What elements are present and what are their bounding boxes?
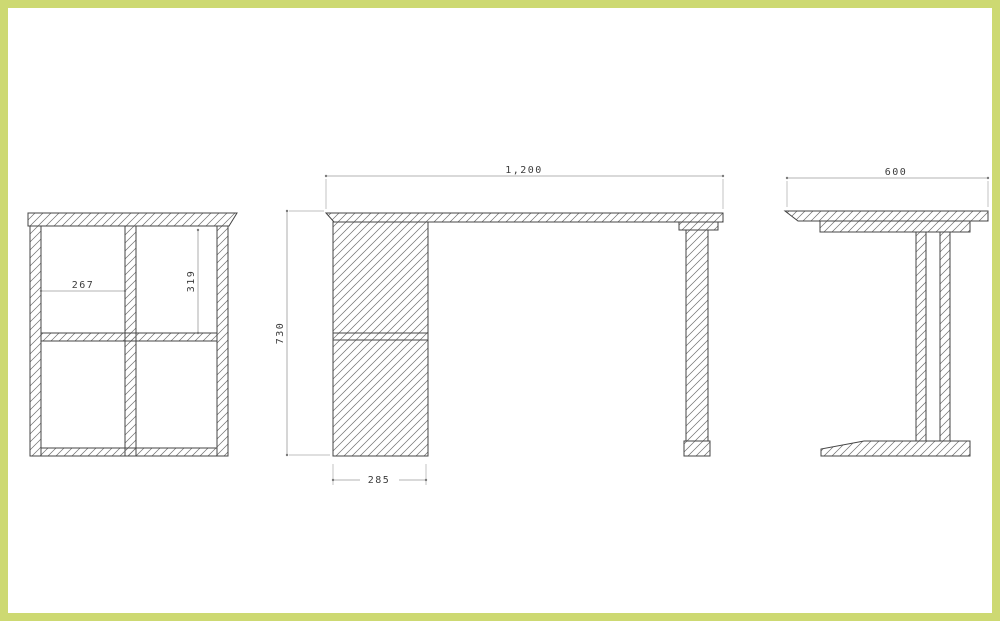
desk-top-panel xyxy=(326,213,723,222)
cabinet-top-panel xyxy=(28,213,237,226)
dim-text-cabinet-inner-width: 267 xyxy=(72,280,95,291)
cabinet-bottom-panel xyxy=(41,448,217,456)
dim-text-pedestal-width: 285 xyxy=(368,475,391,486)
dim-desk-overall-depth: 600 xyxy=(786,167,989,207)
desk-right-leg xyxy=(686,230,708,441)
dim-cabinet-inner-width: 267 xyxy=(40,280,126,292)
cad-drawing: 267 319 1,200 xyxy=(16,16,1000,621)
desk-pedestal-section xyxy=(333,222,428,456)
dim-text-cabinet-inner-height: 319 xyxy=(186,270,197,293)
desk-right-leg-foot xyxy=(684,441,710,456)
side-foot-board xyxy=(821,441,970,456)
dim-cabinet-inner-height: 319 xyxy=(186,229,199,334)
cabinet-left-wall xyxy=(30,226,41,456)
desk-side-view: 600 xyxy=(785,167,989,456)
dim-text-desk-overall-height: 730 xyxy=(275,322,286,345)
side-top-panel xyxy=(785,211,988,221)
drawing-sheet: 267 319 1,200 xyxy=(0,0,1000,621)
side-sub-panel xyxy=(820,221,970,232)
dim-pedestal-width: 285 xyxy=(332,464,427,486)
side-leg-front xyxy=(916,232,926,441)
cabinet-front-view: 267 319 xyxy=(28,213,237,456)
cabinet-right-wall xyxy=(217,226,228,456)
dim-desk-overall-height: 730 xyxy=(275,210,330,456)
desk-front-view: 1,200 730 285 xyxy=(275,165,724,486)
dim-text-desk-overall-depth: 600 xyxy=(885,167,908,178)
dim-desk-overall-width: 1,200 xyxy=(325,165,724,209)
side-leg-back xyxy=(940,232,950,441)
cabinet-middle-shelf xyxy=(41,333,217,341)
dim-text-desk-overall-width: 1,200 xyxy=(505,165,543,176)
desk-leg-bracket xyxy=(679,222,718,230)
